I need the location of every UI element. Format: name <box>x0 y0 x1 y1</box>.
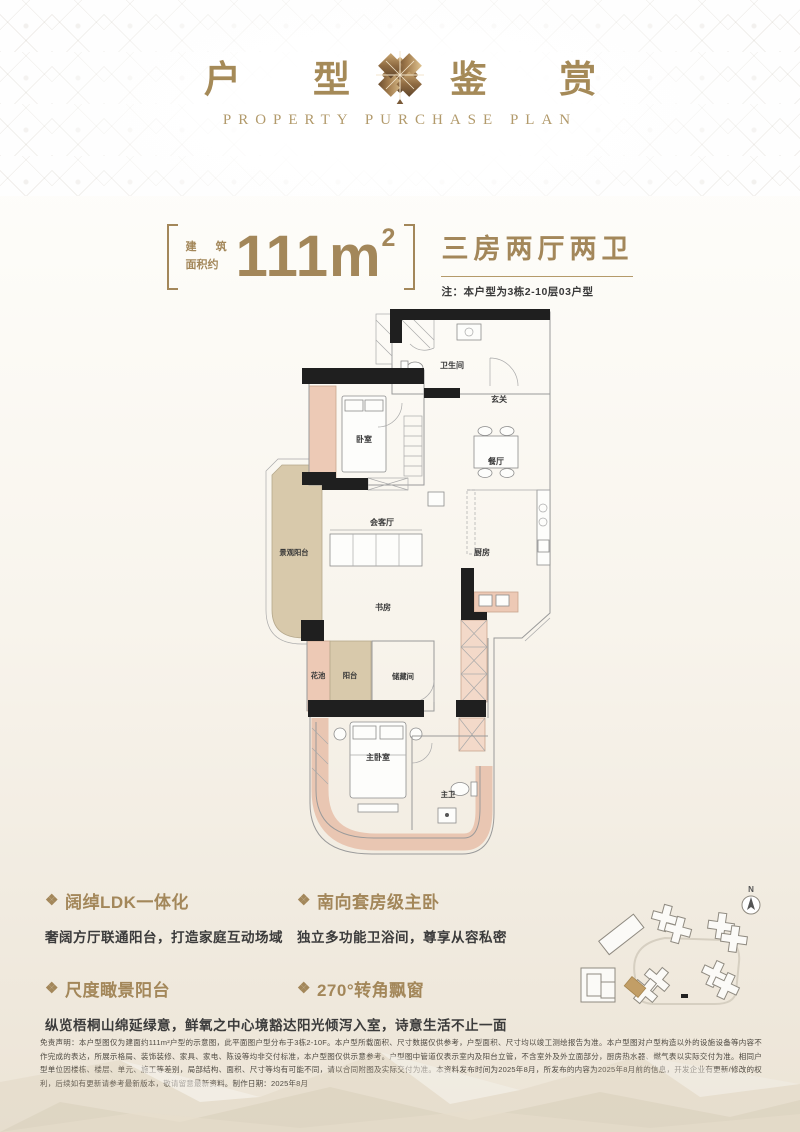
room-label-flower-bed: 花池 <box>311 671 326 680</box>
disclaimer-text: 免责声明：本户型图仅为建面约111m²户型的示意图，此平面图户型分布于3栋2-1… <box>40 1036 762 1090</box>
area-label: 建 筑 面积约 <box>186 239 227 274</box>
feature-list: ❖阔绰LDK一体化 奢阔方厅联通阳台，打造家庭互动场域 ❖南向套房级主卧 独立多… <box>45 888 590 1034</box>
floor-plan-drawing: 卫生间 玄关 餐厅 卧室 会客厅 景观阳台 厨房 书房 花池 阳台 储藏间 主卧… <box>252 308 562 874</box>
north-label: N <box>748 885 754 894</box>
right-bracket <box>404 224 415 290</box>
feature-title: 南向套房级主卧 <box>317 888 440 913</box>
feature-corner-window: ❖270°转角飘窗 阳光倾泻入室，诗意生活不止一面 <box>297 976 590 1034</box>
area-superscript: 2 <box>382 227 397 251</box>
floor-plan: 卫生间 玄关 餐厅 卧室 会客厅 景观阳台 厨房 书房 花池 阳台 储藏间 主卧… <box>252 308 562 874</box>
feature-view-balcony: ❖尺度瞰景阳台 纵览梧桐山绵延绿意，鲜氧之中心境豁达 <box>45 976 297 1034</box>
floral-ornament-icon <box>374 48 426 104</box>
feature-desc: 阳光倾泻入室，诗意生活不止一面 <box>297 1014 590 1034</box>
area-figure: 建 筑 面积约 111m2 <box>167 224 416 290</box>
page-title-left: 户 型 <box>204 49 382 103</box>
diamond-ornament-icon: ❖ <box>297 893 311 908</box>
room-label-master-bedroom: 主卧室 <box>366 752 390 762</box>
page-title-right: 鉴 赏 <box>450 49 628 103</box>
feature-desc: 奢阔方厅联通阳台，打造家庭互动场域 <box>45 926 297 946</box>
room-label-bedroom: 卧室 <box>356 434 372 444</box>
feature-title: 尺度瞰景阳台 <box>65 976 170 1001</box>
room-label-dining: 餐厅 <box>487 456 504 466</box>
room-label-living: 会客厅 <box>370 517 394 527</box>
feature-title: 阔绰LDK一体化 <box>65 888 189 913</box>
diamond-ornament-icon: ❖ <box>45 893 59 908</box>
room-label-study: 书房 <box>375 602 391 612</box>
feature-title: 270°转角飘窗 <box>317 976 424 1001</box>
area-banner: 建 筑 面积约 111m2 三房两厅两卫 注：本户型为3栋2-10层03户型 <box>0 224 800 299</box>
layout-note: 注：本户型为3栋2-10层03户型 <box>441 284 633 299</box>
room-label-balcony: 阳台 <box>343 671 358 680</box>
site-plan-drawing: N <box>575 882 775 1022</box>
feature-ldk: ❖阔绰LDK一体化 奢阔方厅联通阳台，打造家庭互动场域 <box>45 888 297 946</box>
page-title: 户 型 <box>0 48 800 104</box>
room-label-kitchen: 厨房 <box>474 547 490 557</box>
feature-master-suite: ❖南向套房级主卧 独立多功能卫浴间，尊享从容私密 <box>297 888 590 946</box>
tower-buildings <box>627 902 749 1009</box>
room-label-foyer: 玄关 <box>491 394 507 404</box>
header-band: 户 型 <box>0 0 800 196</box>
diamond-ornament-icon: ❖ <box>45 981 59 996</box>
bedroom-bay-window-zone <box>309 386 336 478</box>
room-label-bathroom: 卫生间 <box>440 360 464 370</box>
site-plan: N <box>575 882 775 1022</box>
room-label-storage: 储藏间 <box>391 672 414 681</box>
left-bracket <box>167 224 178 290</box>
layout-type: 三房两厅两卫 <box>441 227 633 277</box>
feature-desc: 纵览梧桐山绵延绿意，鲜氧之中心境豁达 <box>45 1014 297 1034</box>
podium-building <box>581 968 615 1002</box>
area-value: 111m2 <box>236 229 397 284</box>
room-label-master-bath: 主卫 <box>441 790 456 799</box>
page-subtitle: PROPERTY PURCHASE PLAN <box>0 112 800 129</box>
entrance-marker <box>681 994 688 998</box>
compass-icon: N <box>742 885 760 914</box>
diamond-ornament-icon: ❖ <box>297 981 311 996</box>
page-root: 户 型 <box>0 0 800 1132</box>
feature-desc: 独立多功能卫浴间，尊享从容私密 <box>297 926 590 946</box>
room-label-view-balcony: 景观阳台 <box>278 548 308 557</box>
slab-building <box>599 914 644 954</box>
